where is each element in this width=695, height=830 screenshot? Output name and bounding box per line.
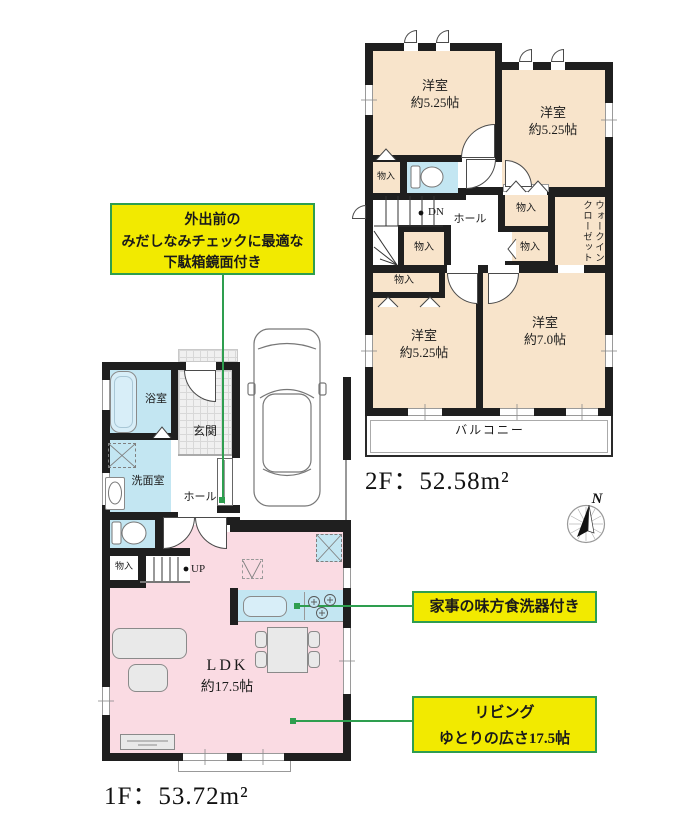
callout-line: みだしなみチェックに最適な <box>112 232 313 254</box>
callout-line: 家事の味方食洗器付き <box>429 599 579 615</box>
callout-boxes: 外出前の みだしなみチェックに最適な 下駄箱鏡面付き 家事の味方食洗器付き リビ… <box>0 0 695 830</box>
callout-line: 外出前の <box>112 210 313 232</box>
callout-line: リビング <box>414 701 595 727</box>
callout-living: リビング ゆとりの広さ17.5帖 <box>412 696 597 753</box>
callout-line: 下駄箱鏡面付き <box>112 253 313 275</box>
callout-dishwasher: 家事の味方食洗器付き <box>412 591 597 623</box>
callout-line: ゆとりの広さ17.5帖 <box>414 727 595 753</box>
floor-plan-page: 洋室 約5.25帖 洋室 約5.25帖 洋室 約5.25帖 洋室 約7.0帖 ホ… <box>0 0 695 830</box>
callout-shoe-box: 外出前の みだしなみチェックに最適な 下駄箱鏡面付き <box>110 203 315 275</box>
